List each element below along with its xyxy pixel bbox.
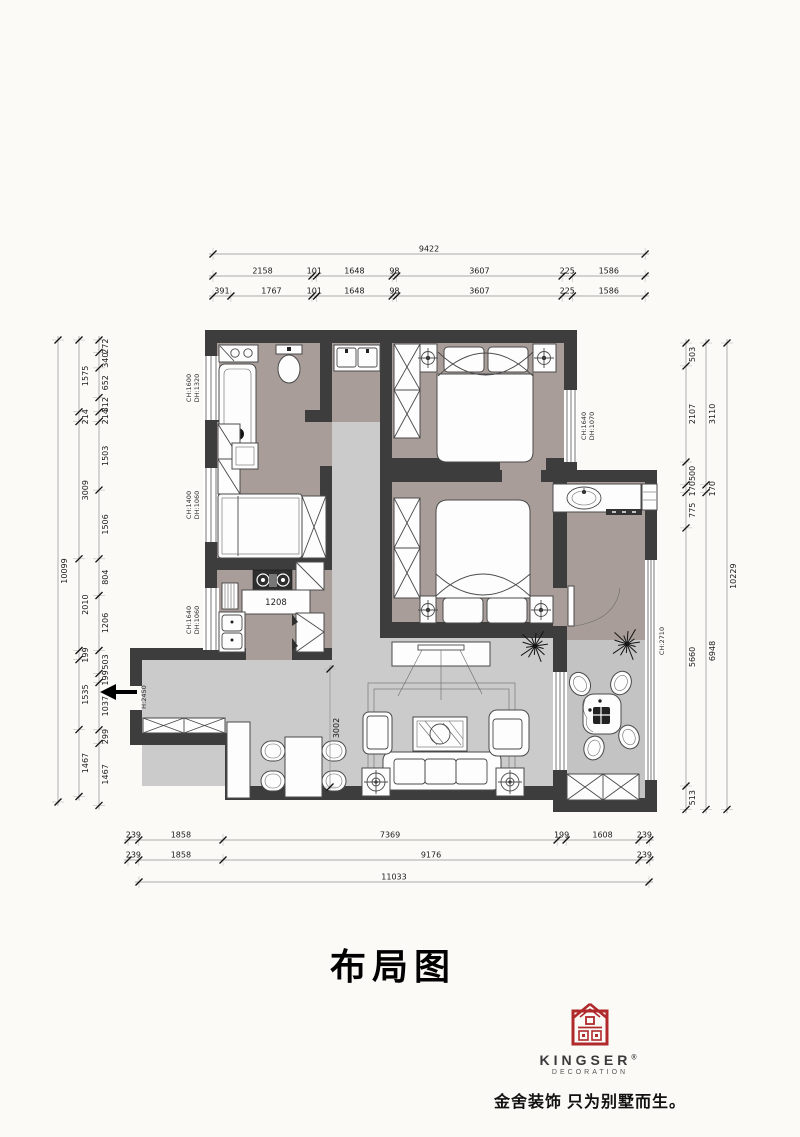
dim-right-inner-value: 5660	[688, 647, 697, 667]
island-dim-label: 1208	[265, 598, 287, 608]
dim-top-total-value: 9422	[419, 245, 439, 254]
radiator	[222, 583, 238, 609]
dim-bottom-row1-value: 1858	[171, 831, 191, 840]
dim-left-inner-value: 299	[101, 729, 110, 744]
dim-left-mid-value: 3009	[81, 480, 90, 500]
dim-left-inner-value: 804	[101, 570, 110, 585]
dining-chair	[322, 741, 346, 761]
dim-right-inner-value: 513	[688, 790, 697, 805]
bedroom1-window	[564, 390, 577, 462]
dim-bottom-row1-value: 239	[126, 831, 141, 840]
vanity	[334, 345, 380, 371]
bedroom1-window-label-ch: CH:1640	[580, 412, 588, 440]
balcony-cabinet	[567, 774, 639, 800]
corner-cabinet	[292, 613, 324, 652]
study-window	[203, 468, 219, 542]
dim-top-row2-value: 98	[389, 287, 399, 296]
dim-left-mid-value: 199	[81, 647, 90, 662]
dining-chair	[261, 741, 285, 761]
bath-window-label-dh: DH:1320	[193, 374, 201, 403]
study-window-label-ch: CH:1400	[185, 491, 193, 519]
dim-left-mid-value: 1575	[81, 366, 90, 386]
dim-left-inner-value: 214	[101, 409, 110, 424]
dim-left-inner-value: 1037	[101, 696, 110, 716]
dim-left-inner-value: 652	[101, 375, 110, 390]
dim-left-inner-value: 272	[101, 339, 110, 354]
rattan-table	[583, 694, 621, 734]
toilet	[276, 345, 302, 383]
dim-bottom-row1-value: 239	[637, 831, 652, 840]
kitchen-window-label-dh: DH:1060	[193, 606, 201, 635]
corner-cabinet	[296, 562, 324, 590]
dim-right-mid-value: 6948	[708, 641, 717, 661]
desk	[232, 443, 258, 469]
dim-right-mid-value: 3110	[708, 404, 717, 424]
kitchen-window	[203, 588, 219, 650]
dining-table	[285, 737, 322, 797]
single-bed	[218, 494, 302, 558]
dim-left-inner-value: 199	[101, 670, 110, 685]
dim-right-inner-value: 500	[688, 466, 697, 481]
balcony-window-label: CH:2710	[658, 627, 666, 655]
page-title: 布局图	[0, 938, 786, 990]
dim-bottom-row2-value: 9176	[421, 851, 441, 860]
dim-dining-width-value: 3002	[332, 718, 341, 738]
dim-left-outer-value: 10099	[60, 558, 69, 583]
dim-right-inner-value: 503	[688, 347, 697, 362]
study-window-label-dh: DH:1060	[193, 491, 201, 520]
tall-cabinet	[227, 722, 250, 798]
dim-bottom-row1-value: 199	[554, 831, 569, 840]
brand-name: KINGSER®	[468, 1052, 712, 1068]
side-chair	[363, 712, 392, 754]
dim-bottom-row1-value: 7369	[380, 831, 400, 840]
dim-left-mid-value: 1535	[81, 684, 90, 704]
sofa	[383, 752, 501, 790]
dim-top-row1-value: 2158	[252, 267, 272, 276]
bath-window-label-ch: CH:1600	[185, 374, 193, 402]
double-bed	[436, 500, 530, 623]
dim-top-row1-value: 225	[560, 267, 575, 276]
dim-top-row2-value: 1648	[344, 287, 364, 296]
island-counter: 1208	[242, 590, 310, 614]
dining-chair	[322, 771, 346, 791]
dim-right-outer-value: 10229	[729, 563, 738, 588]
dim-right-mid-value: 170	[708, 481, 717, 496]
dim-left-mid-value: 2010	[81, 594, 90, 614]
wardrobe	[394, 344, 420, 438]
dim-top-row1-value: 101	[307, 267, 322, 276]
dim-right-inner-value: 170	[688, 481, 697, 496]
lamp-table	[362, 768, 390, 796]
dim-top-row2-value: 101	[307, 287, 322, 296]
balcony-slider	[553, 672, 567, 770]
brand-tagline: 金舍装饰 只为别墅而生。	[468, 1088, 712, 1112]
brand-subtitle: DECORATION	[468, 1069, 712, 1076]
lamp-table	[496, 768, 524, 796]
dim-left-inner-value: 340	[101, 353, 110, 368]
dim-bottom-row2-value: 239	[637, 851, 652, 860]
dim-left-inner-value: 503	[101, 654, 110, 669]
dim-left-mid-value: 1467	[81, 753, 90, 773]
dim-left-inner-value: 1503	[101, 446, 110, 466]
dim-top-row1-value: 1586	[599, 267, 619, 276]
dim-top-row1-value: 3607	[469, 267, 489, 276]
coffee-table	[413, 717, 467, 751]
kingser-logo: KINGSER® DECORATION 金舍装饰 只为别墅而生。	[468, 1002, 712, 1112]
dim-top-row1-value: 1648	[344, 267, 364, 276]
dim-bottom-total-value: 11033	[381, 873, 406, 882]
kitchen-window-label-ch: CH:1640	[185, 606, 193, 634]
kitchen-sink	[219, 612, 245, 652]
wardrobe	[302, 496, 326, 558]
dim-bottom-row1-value: 1608	[592, 831, 612, 840]
entry-height-label: H:2450	[140, 685, 148, 709]
dim-top-row1-value: 98	[389, 267, 399, 276]
dining-chair	[261, 771, 285, 791]
bathroom-window	[203, 356, 219, 420]
bedroom1-window-label-dh: DH:1070	[588, 412, 596, 441]
washer-counter	[219, 345, 258, 362]
balcony-side-window	[645, 560, 657, 780]
dim-left-inner-value: 1467	[101, 764, 110, 784]
dim-top-row2-value: 3607	[469, 287, 489, 296]
dim-top-row2-value: 225	[560, 287, 575, 296]
armchair	[489, 710, 529, 756]
dim-bottom-row2-value: 239	[126, 851, 141, 860]
dim-right-inner-value: 2107	[688, 404, 697, 424]
bathroom2	[553, 484, 657, 515]
dim-left-inner-value: 1206	[101, 613, 110, 633]
wardrobe	[394, 498, 420, 598]
dim-left-inner-value: 1506	[101, 514, 110, 534]
dim-top-row2-value: 1767	[261, 287, 281, 296]
dim-top-row2-value: 1586	[599, 287, 619, 296]
shoe-cabinet	[143, 718, 225, 733]
registered-mark: ®	[631, 1054, 640, 1061]
dim-left-mid-value: 214	[81, 409, 90, 424]
dim-bottom-row2-value: 1858	[171, 851, 191, 860]
dim-right-inner-value: 775	[688, 503, 697, 518]
kingser-logo-emblem	[569, 1002, 611, 1048]
dim-top-row2-value: 391	[214, 287, 229, 296]
